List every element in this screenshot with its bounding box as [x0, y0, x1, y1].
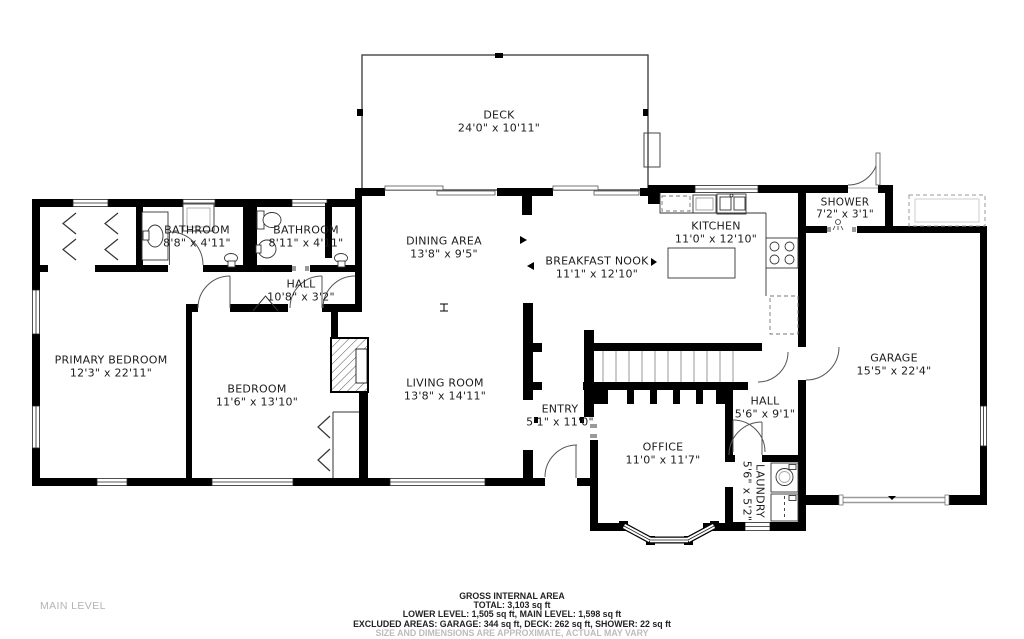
- floorplan-page: DECK 24'0" x 10'11" BATHROOM 8'8" x 4'11…: [0, 0, 1024, 639]
- room-name: BREAKFAST NOOK: [545, 256, 648, 269]
- room-dims: 24'0" x 10'11": [458, 122, 540, 135]
- room-name: DINING AREA: [406, 236, 482, 249]
- bedroom-closet-lines: [333, 412, 359, 478]
- room-name: GARAGE: [857, 353, 932, 366]
- room-dims: 11'0" x 12'10": [675, 233, 757, 246]
- room-label-primary-bedroom: PRIMARY BEDROOM 12'3" x 22'11": [55, 355, 168, 380]
- room-name: LIVING ROOM: [404, 378, 486, 391]
- room-dims: 5'6" x 5'2": [741, 461, 754, 521]
- room-dims: 8'8" x 4'11": [163, 237, 231, 250]
- room-label-deck: DECK 24'0" x 10'11": [458, 110, 540, 135]
- room-name: HALL: [735, 396, 795, 409]
- room-label-bathroom1: BATHROOM 8'8" x 4'11": [163, 225, 231, 250]
- room-dims: 11'0" x 11'7": [626, 454, 701, 467]
- area-summary-disclaimer: SIZE AND DIMENSIONS ARE APPROXIMATE, ACT…: [0, 629, 1024, 638]
- room-label-garage: GARAGE 15'5" x 22'4": [857, 353, 932, 378]
- room-label-hall-lower: HALL 5'6" x 9'1": [735, 396, 795, 421]
- room-name: SHOWER: [816, 198, 874, 210]
- room-name: BEDROOM: [216, 384, 298, 397]
- room-name: BATHROOM: [269, 225, 344, 238]
- room-name: HALL: [267, 279, 335, 292]
- room-label-dining-area: DINING AREA 13'8" x 9'5": [406, 236, 482, 261]
- room-name: BATHROOM: [163, 225, 231, 238]
- area-summary: GROSS INTERNAL AREA TOTAL: 3,103 sq ft L…: [0, 592, 1024, 638]
- room-dims: 12'3" x 22'11": [55, 367, 168, 380]
- room-dims: 5'1" x 11'0": [526, 416, 594, 429]
- room-label-bedroom: BEDROOM 11'6" x 13'10": [216, 384, 298, 409]
- roof-overhang-dashed: [909, 195, 985, 226]
- garage-door: [839, 495, 949, 505]
- room-dims: 13'8" x 14'11": [404, 390, 486, 403]
- laundry-appliances: [771, 463, 798, 521]
- room-name: LAUNDRY: [753, 461, 766, 521]
- closet-chevrons: [63, 213, 330, 471]
- room-dims: 13'8" x 9'5": [406, 248, 482, 261]
- room-name: ENTRY: [526, 404, 594, 417]
- room-label-hall-upper: HALL 10'8" x 3'2": [267, 279, 335, 304]
- room-dims: 11'1" x 12'10": [545, 268, 648, 281]
- floorplan-drawing: [0, 0, 1024, 639]
- room-label-office: OFFICE 11'0" x 11'7": [626, 442, 701, 467]
- fireplace: [331, 338, 368, 392]
- shower-head-icon: [833, 220, 843, 231]
- kitchen-fixtures: [660, 193, 798, 334]
- room-dims: 15'5" x 22'4": [857, 365, 932, 378]
- bay-windows: [624, 526, 714, 540]
- room-label-living-room: LIVING ROOM 13'8" x 14'11": [404, 378, 486, 403]
- room-name: OFFICE: [626, 442, 701, 455]
- room-label-entry: ENTRY 5'1" x 11'0": [526, 404, 594, 429]
- room-label-breakfast-nook: BREAKFAST NOOK 11'1" x 12'10": [545, 256, 648, 281]
- room-name: DECK: [458, 110, 540, 123]
- room-name: KITCHEN: [675, 221, 757, 234]
- room-dims: 8'11" x 4'11": [269, 237, 344, 250]
- room-label-bathroom2: BATHROOM 8'11" x 4'11": [269, 225, 344, 250]
- room-label-shower: SHOWER 7'2" x 3'1": [816, 198, 874, 221]
- room-dims: 7'2" x 3'1": [816, 209, 874, 221]
- room-name: PRIMARY BEDROOM: [55, 355, 168, 368]
- room-dims: 5'6" x 9'1": [735, 408, 795, 421]
- stairs: [603, 351, 733, 382]
- room-dims: 11'6" x 13'10": [216, 396, 298, 409]
- room-label-laundry: LAUNDRY 5'6" x 5'2": [741, 461, 766, 521]
- room-dims: 10'8" x 3'2": [267, 291, 335, 304]
- deck-wall-nubs: [357, 53, 648, 116]
- room-label-kitchen: KITCHEN 11'0" x 12'10": [675, 221, 757, 246]
